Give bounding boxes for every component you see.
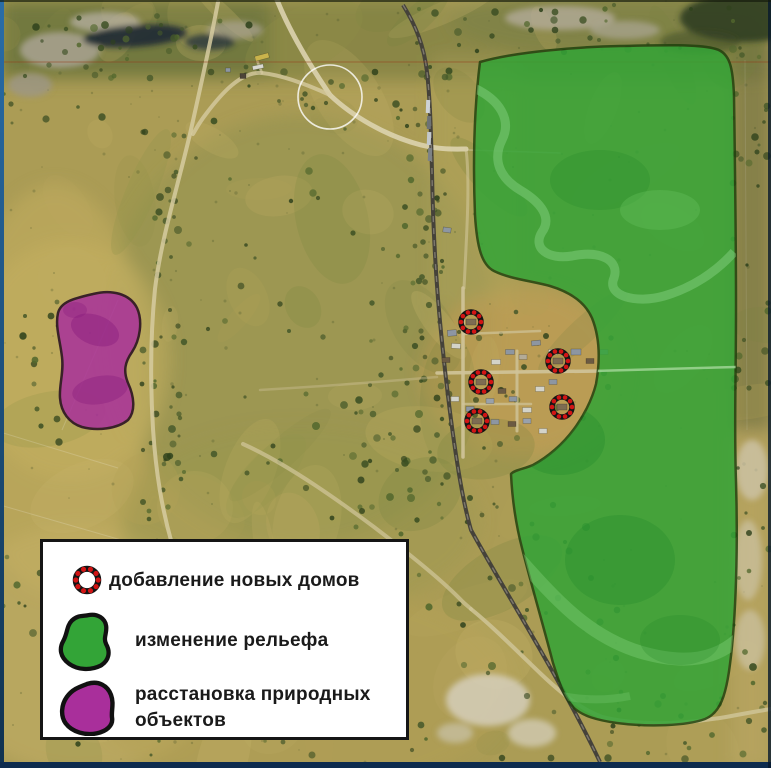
legend-label-nature-objects-line2: объектов bbox=[135, 710, 226, 731]
legend-label-nature-objects-line1: расстановка природных bbox=[135, 684, 371, 705]
map-frame-top bbox=[0, 0, 771, 2]
legend-label-terrain-change: изменение рельефа bbox=[135, 628, 328, 654]
map-frame-left bbox=[0, 0, 4, 768]
green-blob-icon bbox=[55, 612, 123, 672]
map-screenshot: добавление новых домов изменение рельефа… bbox=[0, 0, 771, 768]
dotted-red-circle-icon bbox=[69, 562, 105, 598]
legend-label-nature-objects: расстановка природных объектов bbox=[135, 682, 371, 734]
map-frame-bottom bbox=[0, 762, 771, 768]
legend-label-new-houses: добавление новых домов bbox=[109, 568, 360, 594]
magenta-blob-icon bbox=[58, 680, 122, 736]
legend: добавление новых домов изменение рельефа… bbox=[40, 539, 409, 740]
nature-objects-region bbox=[57, 292, 140, 429]
